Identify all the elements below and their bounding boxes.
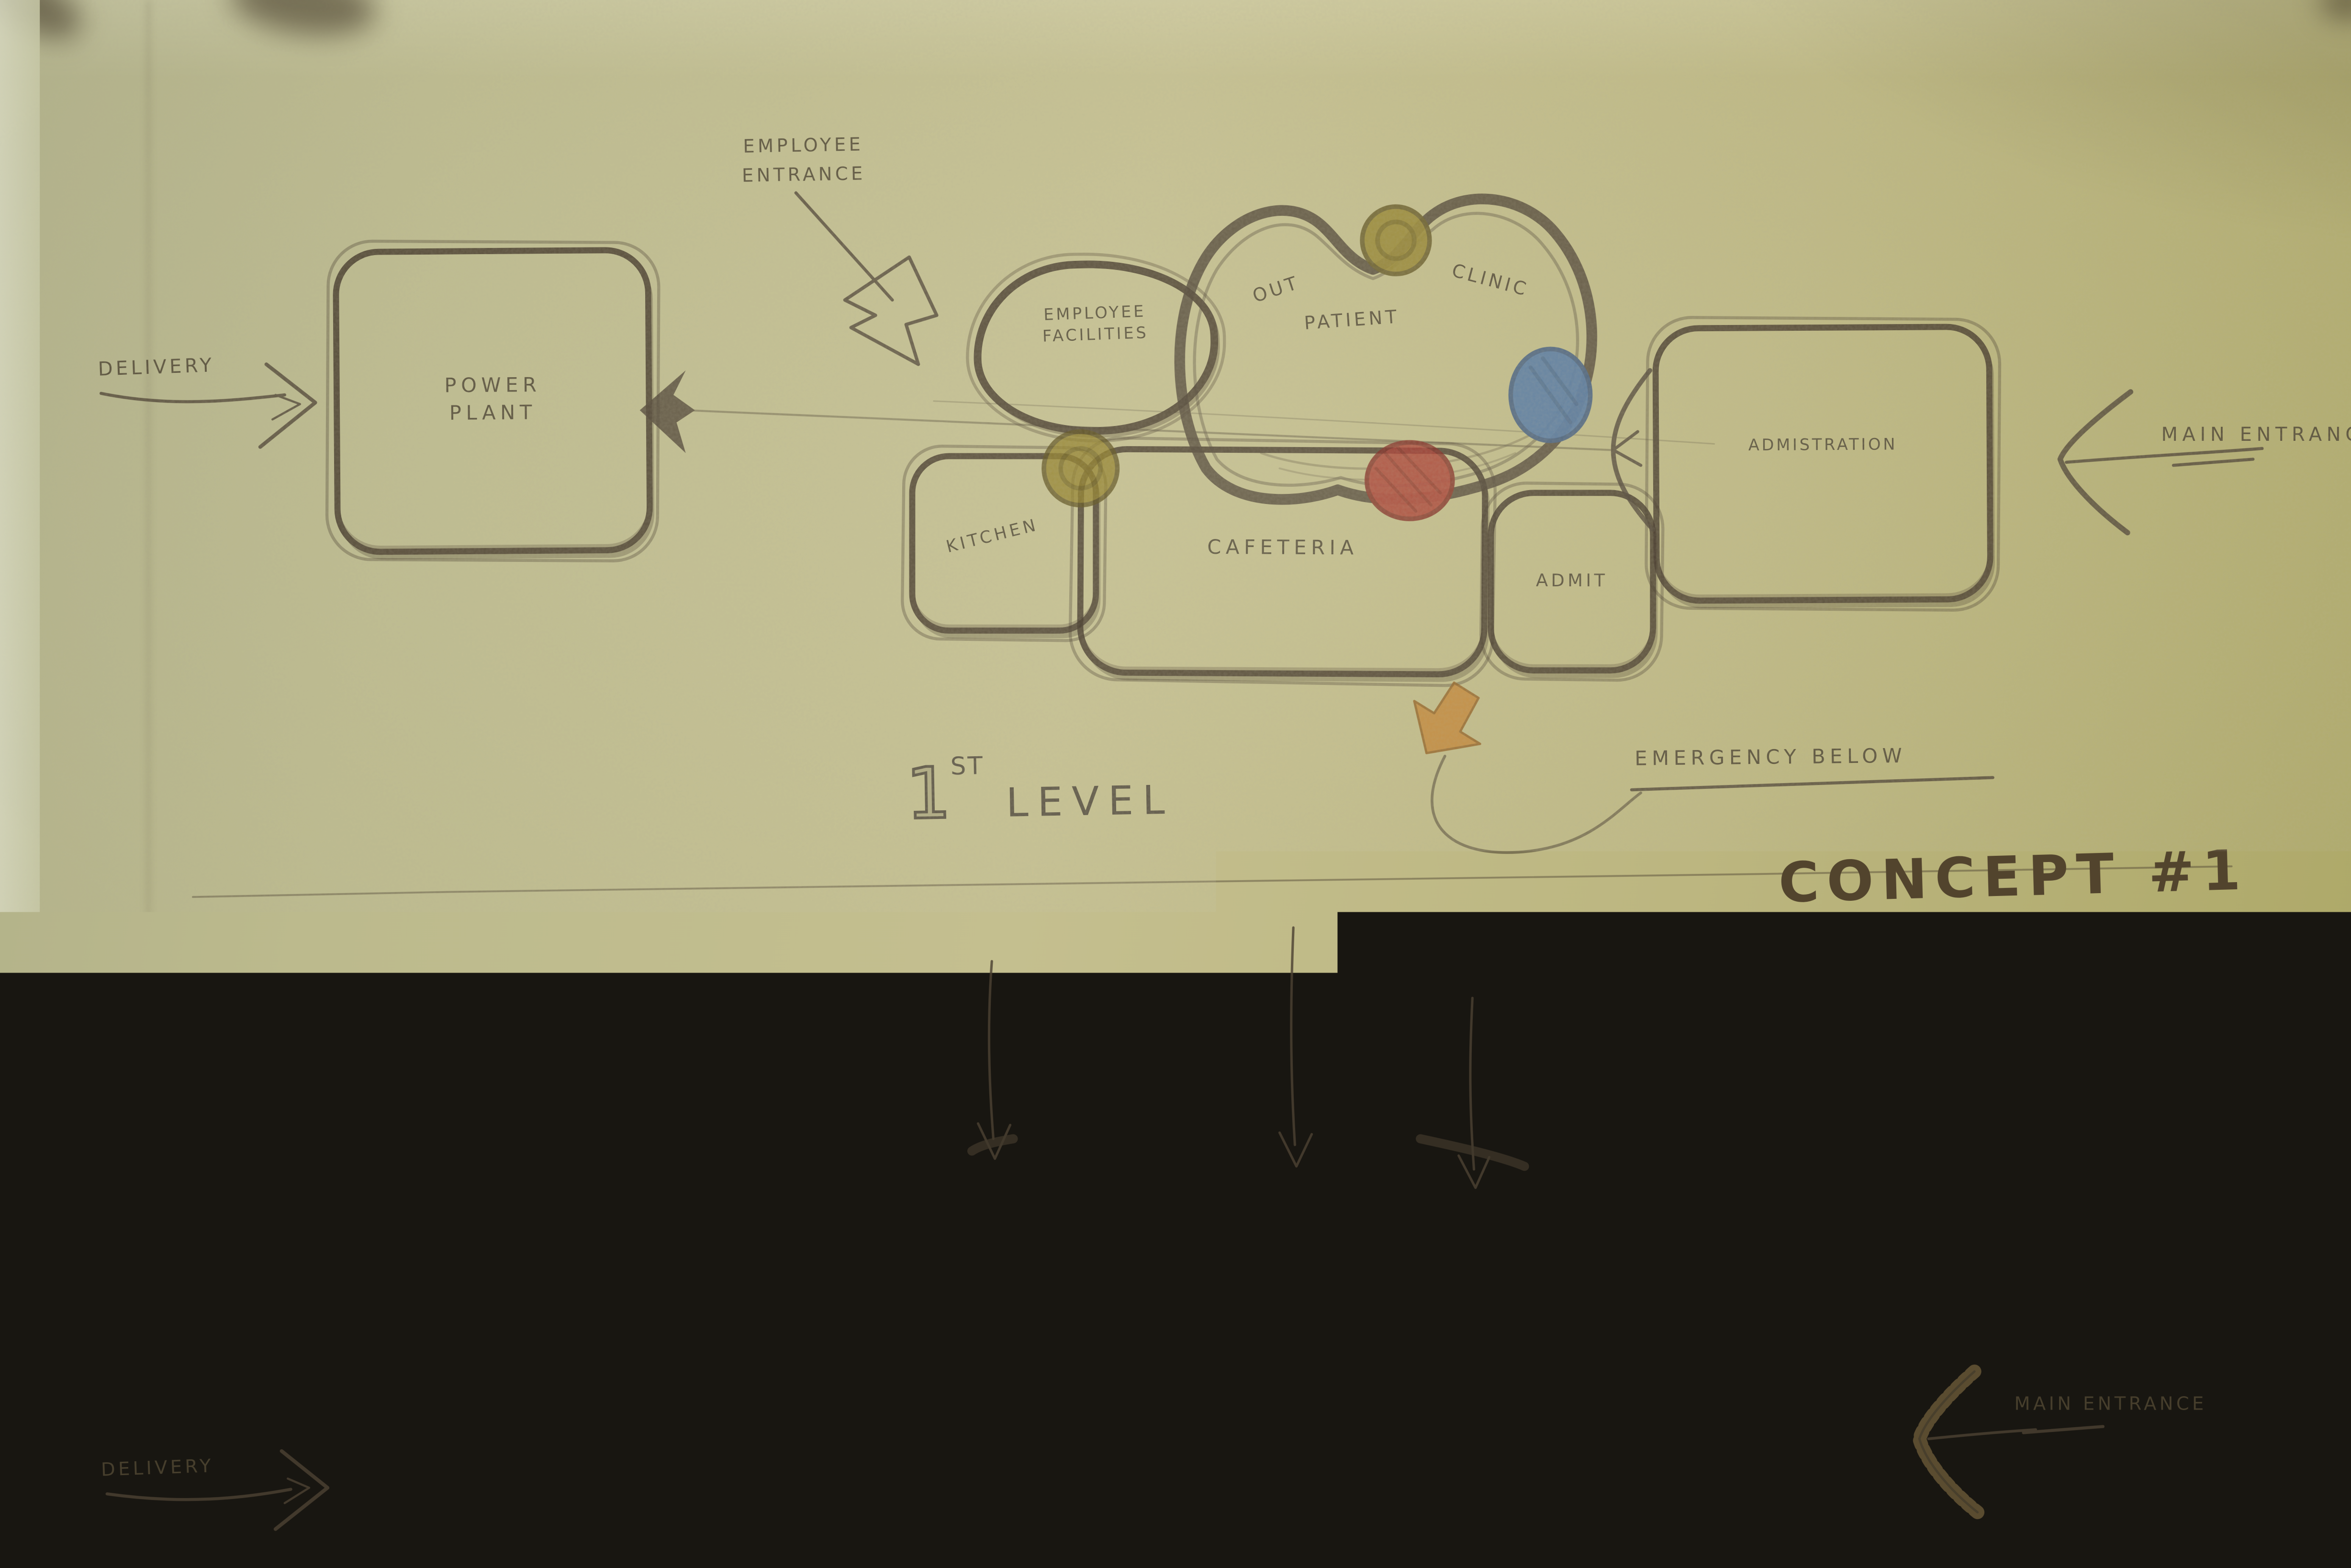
main-entrance-note-section: MAIN ENTRANCE [2014, 1393, 2206, 1414]
employee-entrance-line [796, 193, 892, 300]
room-label: ADMIT [1536, 570, 1608, 594]
photo-smudge-top [226, 0, 380, 44]
room-employee-facilities: EMPLOYEE FACILITIES [971, 256, 1221, 439]
level-caption: 1STLEVEL [906, 748, 1175, 835]
room-label: CAFETERIA [1207, 536, 1358, 563]
main-entrance-note-plan: MAIN ENTRANCE [2161, 423, 2351, 446]
sheet-title: CONCEPT #1 [1778, 837, 2351, 916]
room-label: POWER PLANT [401, 373, 585, 428]
main-entrance-chevron-plan [2060, 392, 2130, 533]
room-supply-section: SUPPLY [667, 1448, 1001, 1558]
room-cafeteria-section: CAFETERIA [1065, 1350, 1332, 1460]
main-entrance-line-plan [2066, 448, 2262, 462]
room-label: ADMINISTRATION [1653, 1391, 1800, 1411]
room-label: SERVICE [1109, 1492, 1202, 1514]
delivery-arrow-section [107, 1490, 291, 1500]
emergency-underline [1632, 778, 1993, 790]
room-cafeteria-plan: CAFETERIA [1077, 446, 1489, 678]
level-word: LEVEL [1006, 778, 1174, 827]
public-strip [1457, 1154, 1490, 1380]
room-power-plant-section: POWER PLANT [354, 1309, 665, 1556]
delivery-note-plan: DELIVERY [98, 353, 215, 380]
room-administration-plan: ADMISTRATION [1652, 324, 1993, 604]
room-admit-plan: ADMIT [1488, 490, 1656, 673]
room-label: KITCHEN [932, 1391, 1018, 1416]
room-administration-section: ADMINISTRATION [1583, 1347, 1870, 1478]
room-kitchen-section: KITCHEN [891, 1350, 1059, 1457]
emergency-arrow [1414, 683, 1480, 753]
room-label: EMPLOYEE FACILITIES [998, 300, 1192, 350]
room-kitchen-plan: KITCHEN [909, 453, 1099, 634]
room-label: POWER PLANT [426, 1386, 593, 1412]
employee-entrance-note: EMPLOYEE ENTRANCE [708, 130, 899, 192]
level-number: 1 [906, 751, 952, 835]
delivery-arrow-plan [101, 393, 285, 402]
supplies-strip [974, 1157, 1006, 1366]
room-power-plant-plan: POWER PLANT [333, 247, 653, 555]
emergency-below-note: EMERGENCY BELOW [1635, 746, 1906, 772]
room-admitting-section: ADMITTING [1454, 1356, 1592, 1558]
node-public-blue [1511, 349, 1590, 441]
room-label-outpatient-w2: PATIENT [1303, 306, 1400, 334]
room-inpatient-section: INPATIENT [1007, 1120, 1445, 1375]
room-label: SUPPLY [795, 1492, 873, 1514]
room-label: CAFETERIA [1141, 1394, 1256, 1416]
emergency-leader-line [1432, 756, 1641, 852]
photo-smudge-topright [2320, 0, 2351, 18]
main-entrance-line-section [1928, 1430, 2036, 1439]
level-ordinal: ST [950, 751, 984, 781]
room-label: EMERGENCY [1342, 1495, 1432, 1512]
room-label: ADMISTRATION [1748, 434, 1898, 457]
room-label-outpatient-w3: CLINIC [1450, 259, 1532, 301]
paper-edge-left [0, 0, 40, 1568]
concept-sketch-photo: POWER PLANT EMPLOYEE FACILITIES OUT PATI… [0, 0, 2351, 1568]
room-service-section: SERVICE [1004, 1448, 1307, 1558]
room-label: INPATIENT [1125, 1219, 1246, 1244]
room-label-outpatient-w1: OUT [1250, 272, 1302, 307]
flow-label-supplies: SUPPLIES [955, 1053, 994, 1154]
node-employee-olive-top [1362, 207, 1430, 274]
room-label: ADMITTING [1451, 1427, 1589, 1444]
employee-entrance-arrowhead [845, 257, 937, 364]
room-label: KITCHEN [944, 514, 1041, 559]
paper-fold-line [146, 0, 152, 1568]
room-outline-outpatient-echo [1195, 213, 1578, 486]
room-emergency-section: EMERGENCY [1304, 1448, 1469, 1558]
delivery-note-section: DELIVERY [101, 1455, 214, 1480]
delivery-arrowhead-plan [260, 364, 315, 447]
